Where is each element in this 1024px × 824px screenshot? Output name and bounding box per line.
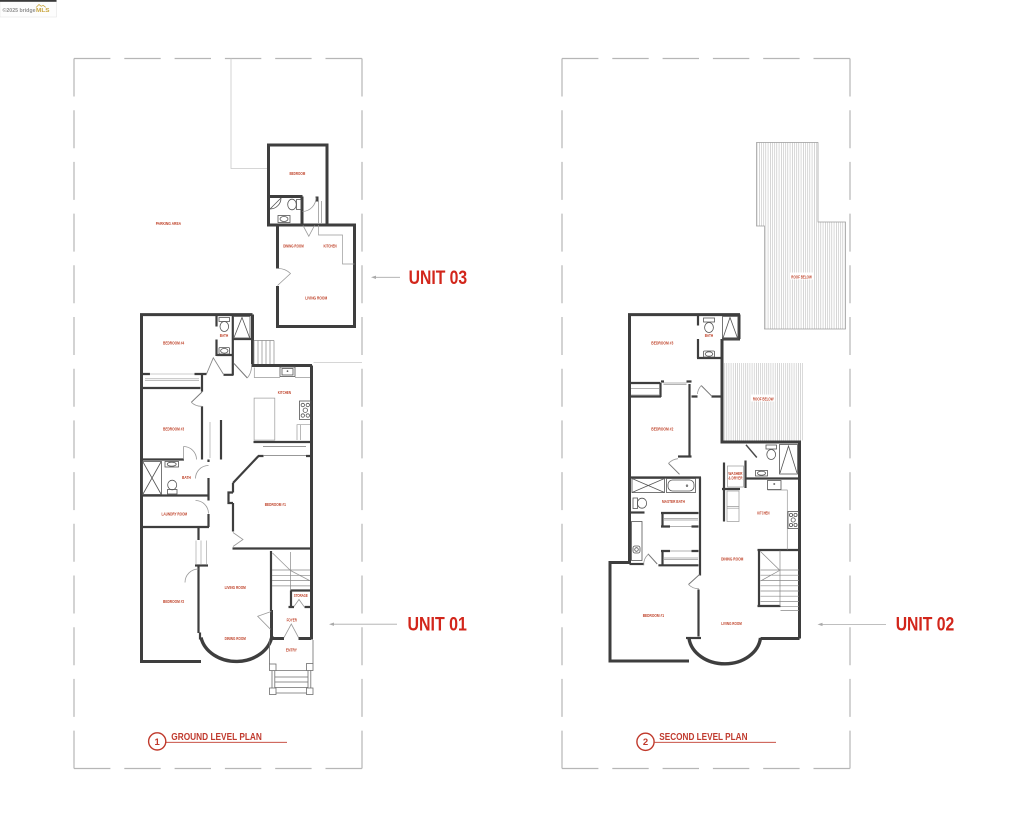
svg-text:ENTRY: ENTRY [286,648,297,653]
svg-text:BEDROOM #3: BEDROOM #3 [163,426,185,431]
svg-text:GROUND LEVEL PLAN: GROUND LEVEL PLAN [171,732,262,743]
svg-text:UNIT 02: UNIT 02 [896,615,955,636]
svg-text:BATH: BATH [220,333,228,338]
svg-text:UNIT 03: UNIT 03 [409,268,468,289]
svg-text:BEDROOM #2: BEDROOM #2 [651,427,674,432]
svg-text:1: 1 [155,737,161,748]
svg-text:MASTER BATH: MASTER BATH [662,499,685,504]
svg-text:LIVING ROOM: LIVING ROOM [305,295,327,300]
svg-text:BEDROOM: BEDROOM [290,171,306,176]
svg-text:DINING ROOM: DINING ROOM [283,243,304,248]
svg-text:KITCHEN: KITCHEN [278,390,291,395]
svg-text:STORAGE: STORAGE [294,593,308,598]
svg-text:ROOF BELOW: ROOF BELOW [753,396,774,401]
svg-text:BEDROOM #1: BEDROOM #1 [265,502,287,507]
svg-text:SECOND LEVEL PLAN: SECOND LEVEL PLAN [659,732,747,743]
svg-text:LAUNDRY ROOM: LAUNDRY ROOM [162,511,188,516]
svg-text:BATH: BATH [705,333,713,338]
svg-text:LIVING ROOM: LIVING ROOM [225,585,247,590]
svg-text:KITCHEN: KITCHEN [757,511,769,516]
svg-text:LIVING ROOM: LIVING ROOM [721,621,742,626]
svg-text:DINING ROOM: DINING ROOM [721,556,744,561]
svg-text:PARKING AREA: PARKING AREA [156,221,181,226]
svg-text:BEDROOM #1: BEDROOM #1 [643,613,665,618]
svg-text:DINING ROOM: DINING ROOM [225,636,247,641]
svg-text:& DRYER: & DRYER [728,475,742,480]
svg-text:©2025 bridge: ©2025 bridge [3,7,36,14]
svg-text:UNIT 01: UNIT 01 [408,615,468,636]
svg-text:ROOF BELOW: ROOF BELOW [791,274,812,279]
svg-text:BATH: BATH [182,475,191,480]
svg-text:BEDROOM #3: BEDROOM #3 [651,341,674,346]
svg-text:KITCHEN: KITCHEN [324,243,337,248]
svg-text:FOYER: FOYER [287,617,297,622]
svg-text:2: 2 [643,737,648,748]
svg-text:BEDROOM #2: BEDROOM #2 [163,599,185,604]
svg-text:MLS: MLS [36,8,50,14]
svg-text:BEDROOM #4: BEDROOM #4 [163,341,185,346]
